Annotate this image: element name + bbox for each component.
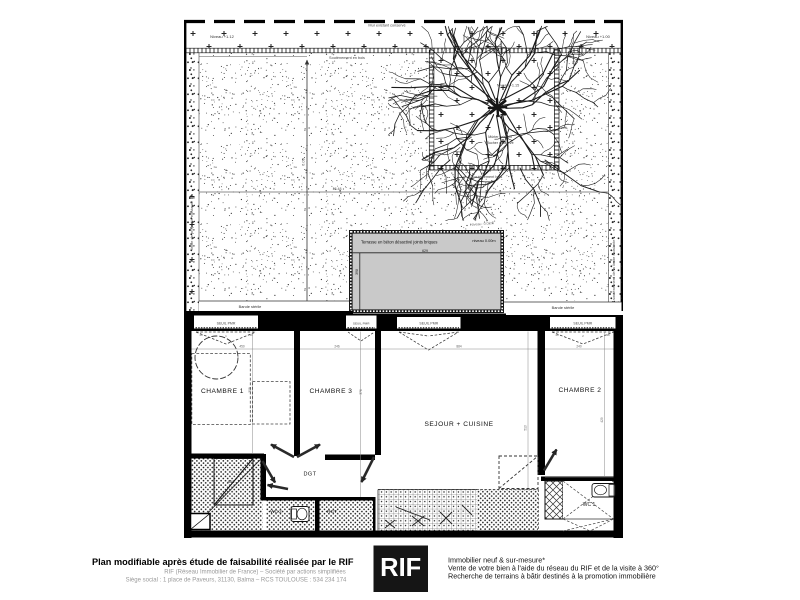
svg-text:SEUIL PMR: SEUIL PMR (353, 321, 370, 325)
svg-text:CHAMBRE 2: CHAMBRE 2 (559, 387, 602, 394)
svg-text:niveau 0.00m: niveau 0.00m (472, 238, 495, 243)
svg-text:Soutènement en bois: Soutènement en bois (329, 56, 365, 60)
svg-text:376: 376 (359, 389, 363, 395)
svg-text:DGT: DGT (303, 472, 316, 478)
svg-text:246: 246 (334, 345, 340, 349)
svg-text:Bande stérile: Bande stérile (239, 304, 262, 309)
svg-text:Recherche de terrains à bâtir: Recherche de terrains à bâtir destinés à… (448, 572, 656, 581)
svg-text:Bande stérile: Bande stérile (552, 305, 575, 310)
svg-text:soutènement de la limite exist: soutènement de la limite existante (611, 239, 616, 300)
svg-text:608: 608 (228, 479, 235, 484)
svg-text:40: 40 (606, 333, 610, 337)
svg-text:884: 884 (456, 345, 462, 349)
svg-text:513: 513 (524, 425, 528, 431)
svg-text:398: 398 (355, 269, 359, 275)
svg-text:40: 40 (199, 333, 203, 337)
svg-text:Plan modifiable après étude de: Plan modifiable après étude de faisabili… (92, 557, 354, 567)
svg-text:CHAMBRE 1: CHAMBRE 1 (201, 388, 244, 395)
svg-text:18.48: 18.48 (333, 187, 342, 191)
svg-text:SEUIL PMR: SEUIL PMR (573, 321, 592, 325)
svg-text:SEUIL PMR: SEUIL PMR (419, 321, 438, 325)
svg-text:WC 2: WC 2 (270, 509, 282, 514)
svg-text:SEJOUR + CUISINE: SEJOUR + CUISINE (424, 421, 493, 428)
svg-text:Mur existant conservé: Mur existant conservé (368, 24, 405, 28)
svg-text:240: 240 (576, 345, 582, 349)
svg-text:Rucher conservé: Rucher conservé (486, 141, 513, 145)
svg-text:CHAMBRE 3: CHAMBRE 3 (310, 388, 353, 395)
svg-text:Mûrier existant: Mûrier existant (488, 135, 512, 139)
svg-text:RIF (Réseau Immobilier de Fran: RIF (Réseau Immobilier de France) – Soci… (164, 570, 345, 576)
svg-text:429: 429 (600, 417, 604, 423)
svg-text:Siège social : 1 place de Pave: Siège social : 1 place de Paveurs, 31130… (126, 578, 347, 584)
svg-text:Soutènement bois: Soutènement bois (472, 175, 503, 179)
svg-text:Niveau +1.00: Niveau +1.00 (586, 34, 610, 39)
svg-text:RGT: RGT (327, 509, 337, 514)
svg-text:6.09: 6.09 (301, 157, 306, 166)
svg-text:629: 629 (422, 249, 428, 253)
svg-text:40: 40 (555, 333, 559, 337)
svg-text:Niveau +1.12: Niveau +1.12 (210, 34, 234, 39)
svg-text:SEUIL PMR: SEUIL PMR (217, 321, 236, 325)
svg-text:Terrasse en béton désactivé jo: Terrasse en béton désactivé joints briqu… (361, 240, 437, 245)
svg-text:Niveau +1.15: Niveau +1.15 (497, 84, 519, 88)
svg-text:WC 1: WC 1 (583, 502, 596, 508)
svg-text:450: 450 (239, 345, 245, 349)
svg-text:RIF: RIF (380, 554, 421, 582)
